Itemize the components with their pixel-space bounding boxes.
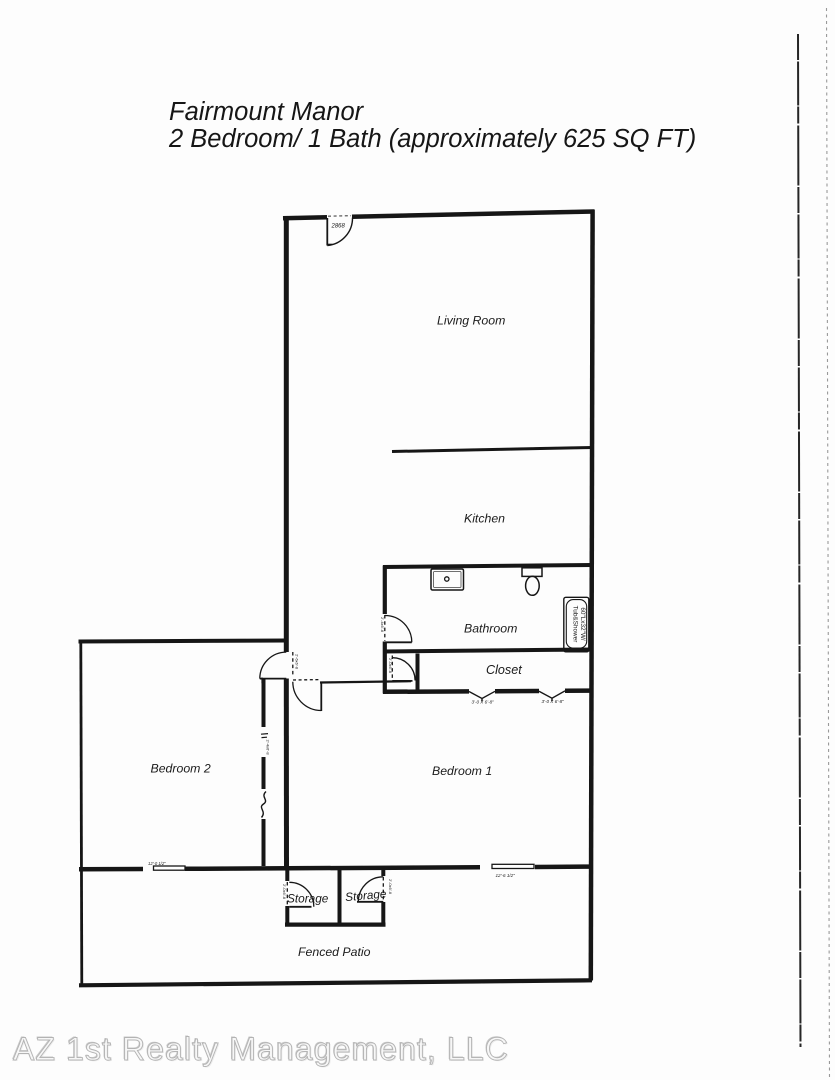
svg-text:Fenced Patio: Fenced Patio [298, 945, 371, 959]
svg-text:Kitchen: Kitchen [464, 512, 505, 526]
svg-text:3'-0 X 6'-8": 3'-0 X 6'-8" [472, 700, 495, 705]
svg-text:2'-4x6'-8: 2'-4x6'-8 [380, 617, 385, 633]
svg-text:Living Room: Living Room [437, 314, 505, 328]
svg-text:2'-4x6'-8: 2'-4x6'-8 [266, 740, 271, 756]
svg-text:12'-6 1/2": 12'-6 1/2" [496, 873, 516, 878]
svg-text:Bedroom 2: Bedroom 2 [151, 762, 211, 776]
svg-text:3'-0 X 6'-8": 3'-0 X 6'-8" [542, 699, 565, 704]
svg-text:2'-0x6'-8: 2'-0x6'-8 [388, 658, 393, 674]
svg-text:Bedroom 1: Bedroom 1 [432, 764, 492, 778]
svg-text:2868: 2868 [331, 224, 346, 230]
svg-text:2'-6x6'-8: 2'-6x6'-8 [295, 654, 300, 670]
svg-text:12'-0 1/2": 12'-0 1/2" [148, 861, 166, 866]
svg-text:Bathroom: Bathroom [464, 622, 517, 636]
svg-text:Tub&Shower: Tub&Shower [571, 606, 578, 644]
svg-text:60"Lx32"W/: 60"Lx32"W/ [579, 607, 586, 641]
svg-text:Closet: Closet [486, 663, 522, 677]
svg-text:2'-0x6'-8: 2'-0x6'-8 [388, 879, 393, 895]
svg-text:Storage: Storage [287, 892, 329, 906]
